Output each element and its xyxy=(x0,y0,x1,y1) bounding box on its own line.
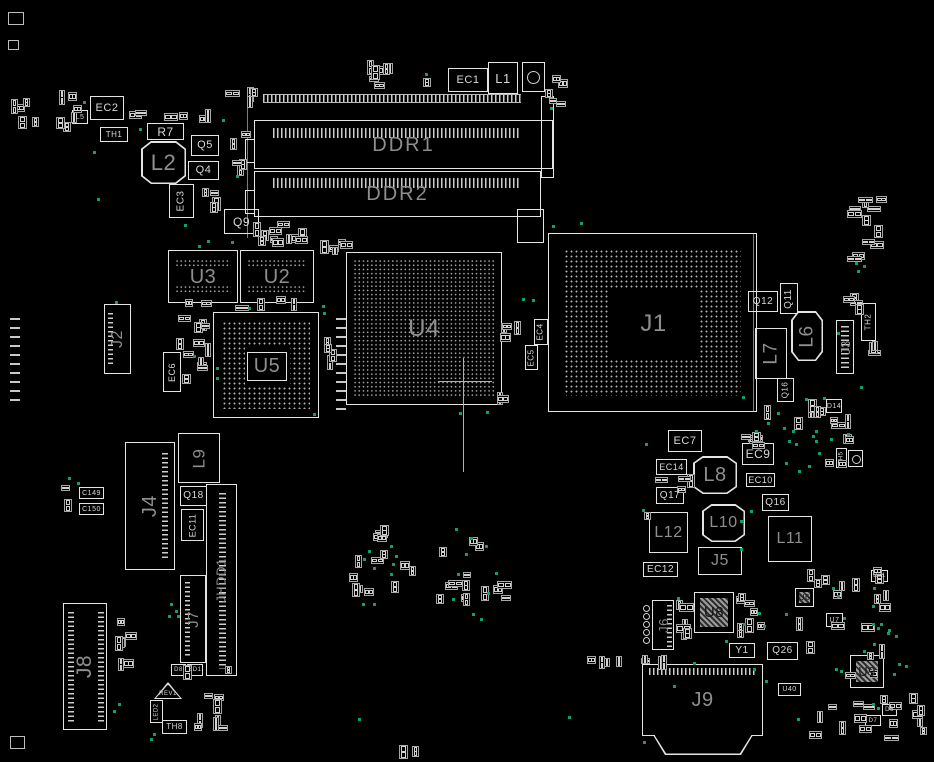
part-pad xyxy=(911,698,916,703)
connector-hole xyxy=(643,621,650,628)
small-part[interactable] xyxy=(683,628,692,639)
small-part[interactable] xyxy=(862,239,875,245)
part-pad xyxy=(562,81,567,86)
component-EC2-3[interactable]: EC2 xyxy=(90,96,124,120)
part-pad xyxy=(874,345,876,350)
part-pad xyxy=(506,325,511,328)
small-part[interactable] xyxy=(241,131,251,138)
test-point xyxy=(798,470,801,473)
component-label: EC12 xyxy=(647,565,674,575)
small-part[interactable] xyxy=(825,459,834,467)
test-point xyxy=(763,625,766,628)
small-part[interactable] xyxy=(845,672,856,679)
component-EC1-0[interactable]: EC1 xyxy=(448,68,488,92)
small-part[interactable] xyxy=(11,99,18,114)
part-pad xyxy=(206,302,211,305)
small-part[interactable] xyxy=(204,693,213,699)
small-part[interactable] xyxy=(383,63,390,75)
small-part[interactable] xyxy=(371,65,380,80)
part-pad xyxy=(766,406,769,412)
component-DDR1[interactable]: DDR1 xyxy=(254,120,553,169)
component-EC11-48[interactable]: EC11 xyxy=(181,509,204,541)
part-pad xyxy=(252,92,256,96)
small-part[interactable] xyxy=(545,89,553,98)
small-part[interactable] xyxy=(809,731,822,739)
component-label: EC14 xyxy=(659,463,684,472)
small-part[interactable] xyxy=(178,315,191,322)
small-part[interactable] xyxy=(839,721,846,735)
component-EC7-31[interactable]: EC7 xyxy=(668,430,702,452)
component-J4-45[interactable]: J4 xyxy=(125,442,175,570)
small-part[interactable] xyxy=(225,666,232,674)
small-part[interactable] xyxy=(202,188,209,197)
part-pad xyxy=(357,556,360,561)
part-pad xyxy=(556,77,560,81)
part-pad xyxy=(178,344,182,349)
small-part[interactable] xyxy=(258,236,266,246)
test-point xyxy=(139,128,142,131)
small-part[interactable] xyxy=(409,566,416,576)
component-JHDD1-49[interactable]: JHDD1 xyxy=(206,484,237,676)
part-pad xyxy=(739,626,742,630)
part-pad xyxy=(866,727,871,731)
part-pad xyxy=(663,663,665,669)
small-part[interactable] xyxy=(862,215,871,226)
test-point xyxy=(857,270,860,273)
component-U3-12[interactable]: U3 xyxy=(168,250,238,303)
test-point xyxy=(459,412,462,415)
small-part[interactable] xyxy=(843,296,855,303)
small-part[interactable] xyxy=(552,75,561,83)
part-pad xyxy=(379,84,384,87)
component-Y1-59[interactable]: Y1 xyxy=(729,643,755,658)
component-label: TH8 xyxy=(166,723,183,731)
test-point xyxy=(184,224,187,227)
part-pad xyxy=(885,737,891,739)
small-part[interactable] xyxy=(123,659,134,668)
component-TH1-5[interactable]: TH1 xyxy=(100,127,128,142)
small-part[interactable] xyxy=(867,652,874,660)
part-pad xyxy=(302,238,307,242)
small-part[interactable] xyxy=(514,321,521,335)
part-pad xyxy=(753,610,757,614)
part-pad xyxy=(687,605,693,610)
component-Q12-21[interactable]: Q12 xyxy=(748,291,778,312)
part-pad xyxy=(841,585,843,590)
small-part[interactable] xyxy=(847,210,862,218)
test-point xyxy=(835,668,838,671)
small-part[interactable] xyxy=(269,227,282,235)
part-pad xyxy=(876,226,881,231)
small-part[interactable] xyxy=(201,323,210,329)
small-part[interactable] xyxy=(806,641,815,654)
small-part[interactable] xyxy=(679,603,694,612)
component-Q16-26[interactable]: Q16 xyxy=(777,378,794,402)
component-U8-58[interactable]: U8 xyxy=(694,592,734,633)
component-label: L6 xyxy=(797,325,816,347)
component-Q16-37[interactable]: Q16 xyxy=(762,494,789,511)
component-J8-51[interactable]: J8 xyxy=(63,603,107,730)
component-Q4-9[interactable]: Q4 xyxy=(188,161,219,180)
component-J1-20[interactable]: J1 xyxy=(548,233,757,412)
component-J7-50[interactable]: J7 xyxy=(180,575,206,663)
test-point xyxy=(236,175,239,178)
component-EC4-18[interactable]: EC4 xyxy=(534,319,548,345)
part-pad xyxy=(809,570,813,575)
component-J5-41[interactable]: J5 xyxy=(698,547,742,575)
small-part[interactable] xyxy=(210,202,218,213)
component-unlabeled-2[interactable] xyxy=(522,62,545,92)
small-part[interactable] xyxy=(164,113,178,121)
part-pad xyxy=(866,199,872,201)
small-part[interactable] xyxy=(463,572,471,578)
part-pad xyxy=(438,598,442,603)
small-part[interactable] xyxy=(194,723,202,731)
small-part[interactable] xyxy=(235,305,249,311)
small-part[interactable] xyxy=(439,547,447,557)
small-part[interactable] xyxy=(213,717,219,731)
pad-column xyxy=(336,318,346,414)
small-part[interactable] xyxy=(205,109,211,123)
small-part[interactable] xyxy=(741,434,751,440)
component-C150-44[interactable]: C150 xyxy=(79,503,104,515)
small-part[interactable] xyxy=(845,436,854,444)
test-point xyxy=(77,482,80,485)
small-part[interactable] xyxy=(744,600,755,607)
part-pad xyxy=(20,123,25,128)
part-pad xyxy=(855,258,861,260)
small-part[interactable] xyxy=(661,655,667,670)
small-part[interactable] xyxy=(920,727,927,735)
component-Q26-60[interactable]: Q26 xyxy=(767,642,798,660)
small-part[interactable] xyxy=(355,555,362,568)
small-part[interactable] xyxy=(839,581,845,591)
small-part[interactable] xyxy=(374,82,385,89)
part-pad xyxy=(259,299,263,304)
small-part[interactable] xyxy=(320,240,329,254)
small-part[interactable] xyxy=(185,299,193,307)
small-part[interactable] xyxy=(884,735,899,741)
part-pad xyxy=(278,223,283,226)
small-part[interactable] xyxy=(257,298,265,311)
component-REV1-54[interactable]: REV1 xyxy=(154,682,182,699)
part-pad xyxy=(293,305,295,310)
small-part[interactable] xyxy=(23,98,30,107)
small-part[interactable] xyxy=(247,96,253,108)
small-part[interactable] xyxy=(828,704,837,710)
small-part[interactable] xyxy=(352,583,360,597)
small-part[interactable] xyxy=(291,298,297,311)
test-point xyxy=(783,427,786,430)
small-part[interactable] xyxy=(182,374,191,384)
component-L1-1[interactable]: L1 xyxy=(488,62,518,94)
small-part[interactable] xyxy=(277,221,290,228)
small-part[interactable] xyxy=(56,117,65,129)
small-part[interactable] xyxy=(391,581,399,593)
small-part[interactable] xyxy=(655,477,668,483)
small-part[interactable] xyxy=(463,593,470,606)
small-part[interactable] xyxy=(436,594,444,604)
small-part[interactable] xyxy=(399,745,408,759)
test-point xyxy=(193,355,196,358)
small-part[interactable] xyxy=(412,746,419,757)
small-part[interactable] xyxy=(616,656,622,667)
part-pad xyxy=(498,583,504,587)
small-part[interactable] xyxy=(853,701,864,707)
small-part[interactable] xyxy=(448,580,463,587)
component-Q18-47[interactable]: Q18 xyxy=(180,486,207,506)
test-point xyxy=(313,413,316,416)
small-part[interactable] xyxy=(830,417,838,424)
component-L9-46[interactable]: L9 xyxy=(178,433,220,483)
part-pad xyxy=(185,317,190,320)
small-part[interactable] xyxy=(879,603,891,612)
part-pad xyxy=(411,570,414,575)
small-part[interactable] xyxy=(68,92,77,101)
part-pad xyxy=(456,582,462,585)
part-pad xyxy=(25,102,28,106)
connector-hole xyxy=(643,637,650,644)
small-part[interactable] xyxy=(501,595,511,601)
test-point xyxy=(68,477,71,480)
small-part[interactable] xyxy=(500,333,511,342)
part-pad xyxy=(232,144,235,149)
small-part[interactable] xyxy=(324,344,332,353)
small-part[interactable] xyxy=(272,238,284,247)
small-part[interactable] xyxy=(176,338,184,350)
small-part[interactable] xyxy=(423,78,431,87)
small-part[interactable] xyxy=(349,573,358,582)
component-U6-63[interactable]: U6 xyxy=(795,588,814,607)
test-point xyxy=(118,703,121,706)
component-J9-62[interactable]: J9 xyxy=(642,664,763,736)
small-part[interactable] xyxy=(205,343,211,357)
part-pad xyxy=(341,243,346,247)
small-part[interactable] xyxy=(232,160,242,166)
test-point xyxy=(785,613,788,616)
component-label: EC4 xyxy=(537,323,545,340)
component-L6-24[interactable]: L6 xyxy=(791,311,823,361)
small-part[interactable] xyxy=(125,632,137,640)
part-pad xyxy=(885,605,890,610)
component-L12-38[interactable]: L12 xyxy=(649,512,688,553)
component-U40-61[interactable]: U40 xyxy=(778,683,801,696)
part-pad xyxy=(233,92,239,95)
small-part[interactable] xyxy=(210,190,219,196)
test-point xyxy=(470,537,473,540)
part-pad xyxy=(372,559,377,562)
small-part[interactable] xyxy=(587,656,596,664)
small-part[interactable] xyxy=(340,241,353,249)
small-part[interactable] xyxy=(213,699,222,714)
test-point xyxy=(465,553,468,556)
small-part[interactable] xyxy=(253,222,261,237)
component-J2-14[interactable]: J2 xyxy=(104,304,131,374)
component-J6-57[interactable]: J6 xyxy=(652,600,674,650)
part-pad xyxy=(847,415,849,421)
small-part[interactable] xyxy=(497,395,509,403)
test-point xyxy=(740,548,743,551)
component-D14-28[interactable]: D14 xyxy=(826,399,842,413)
component-EC5-19[interactable]: EC5 xyxy=(525,345,538,370)
small-part[interactable] xyxy=(858,197,873,203)
part-pad xyxy=(816,733,821,737)
connector-pin-strip xyxy=(98,612,104,722)
circle-component-body xyxy=(852,455,861,464)
part-pad xyxy=(353,575,357,580)
component-L10-39[interactable]: L10 xyxy=(702,504,745,542)
component-label: Q11 xyxy=(784,289,794,309)
small-part[interactable] xyxy=(889,719,898,728)
component-C149-43[interactable]: C149 xyxy=(79,487,104,499)
small-part[interactable] xyxy=(61,485,70,491)
small-part[interactable] xyxy=(872,341,878,351)
part-pad xyxy=(385,69,388,74)
small-part[interactable] xyxy=(115,636,123,651)
small-part[interactable] xyxy=(876,196,887,203)
small-part[interactable] xyxy=(821,575,830,585)
small-part[interactable] xyxy=(295,236,308,244)
test-point xyxy=(373,567,376,570)
test-point xyxy=(248,307,251,310)
small-part[interactable] xyxy=(556,101,566,107)
small-part[interactable] xyxy=(817,711,823,723)
component-J3-25[interactable]: J3 xyxy=(836,320,854,374)
component-R7-6[interactable]: R7 xyxy=(147,123,184,140)
small-part[interactable] xyxy=(642,655,648,664)
small-part[interactable] xyxy=(867,206,881,212)
component-U5-15[interactable]: U5 xyxy=(213,312,319,418)
part-pad xyxy=(893,721,897,726)
component-DDR2[interactable]: DDR2 xyxy=(254,171,541,217)
small-part[interactable] xyxy=(794,417,803,430)
test-point xyxy=(855,262,858,265)
part-pad xyxy=(808,642,813,647)
small-part[interactable] xyxy=(644,512,651,520)
part-pad xyxy=(207,116,209,122)
small-part[interactable] xyxy=(230,138,237,150)
part-pad xyxy=(117,637,121,643)
small-part[interactable] xyxy=(874,594,881,604)
small-part[interactable] xyxy=(201,300,212,307)
small-part[interactable] xyxy=(225,90,240,97)
component-EC3-10[interactable]: EC3 xyxy=(169,184,194,218)
component-label: U6 xyxy=(799,594,810,602)
test-point xyxy=(805,398,808,401)
bga-center-area: U5 xyxy=(245,345,290,387)
small-part[interactable] xyxy=(909,693,918,704)
small-part[interactable] xyxy=(917,705,925,716)
test-point xyxy=(847,433,850,436)
small-part[interactable] xyxy=(796,617,803,631)
small-part[interactable] xyxy=(917,718,923,727)
small-part[interactable] xyxy=(502,323,512,330)
small-part[interactable] xyxy=(814,406,821,418)
small-part[interactable] xyxy=(250,88,258,97)
part-pad xyxy=(293,299,295,304)
small-part[interactable] xyxy=(64,499,72,512)
component-EC12-42[interactable]: EC12 xyxy=(643,562,678,577)
small-part[interactable] xyxy=(32,117,39,127)
component-unlabeled-30[interactable] xyxy=(848,450,863,467)
small-part[interactable] xyxy=(462,580,470,591)
small-part[interactable] xyxy=(854,714,867,723)
small-part[interactable] xyxy=(604,658,610,667)
small-part[interactable] xyxy=(179,112,188,120)
test-point xyxy=(390,573,393,576)
small-part[interactable] xyxy=(883,590,889,601)
small-part[interactable] xyxy=(135,110,147,116)
board-mark xyxy=(10,736,25,749)
small-part[interactable] xyxy=(678,476,691,482)
small-part[interactable] xyxy=(859,725,872,733)
component-label: D21 xyxy=(873,573,886,579)
test-point xyxy=(113,710,116,713)
small-part[interactable] xyxy=(276,296,286,304)
test-point xyxy=(808,465,811,468)
dimm-pin-row xyxy=(263,94,521,103)
small-part[interactable] xyxy=(874,225,883,238)
component-TH8-56[interactable]: TH8 xyxy=(162,720,187,734)
small-part[interactable] xyxy=(879,644,885,659)
component-Q11-22[interactable]: Q11 xyxy=(780,283,798,314)
component-L8-34[interactable]: L8 xyxy=(693,456,737,494)
small-part[interactable] xyxy=(752,432,761,442)
part-pad xyxy=(823,579,828,584)
small-part[interactable] xyxy=(380,550,388,559)
small-part[interactable] xyxy=(845,414,851,429)
test-point xyxy=(368,550,371,553)
small-part[interactable] xyxy=(497,581,512,589)
small-part[interactable] xyxy=(380,525,389,536)
part-pad xyxy=(848,258,854,260)
selection-crosshair xyxy=(438,381,492,382)
part-pad xyxy=(869,655,872,659)
test-point xyxy=(893,673,896,676)
small-part[interactable] xyxy=(18,116,27,129)
part-pad xyxy=(226,92,232,95)
component-label: EC11 xyxy=(188,513,197,537)
component-U4-17[interactable]: U4 xyxy=(346,252,502,405)
component-L2-7[interactable]: L2 xyxy=(141,141,186,184)
small-part[interactable] xyxy=(745,618,754,633)
test-point xyxy=(395,555,398,558)
small-part[interactable] xyxy=(193,339,205,347)
part-pad xyxy=(685,478,690,480)
component-EC14-32[interactable]: EC14 xyxy=(656,459,687,475)
component-L11-40[interactable]: L11 xyxy=(768,516,812,562)
component-Q17-36[interactable]: Q17 xyxy=(656,487,684,504)
small-part[interactable] xyxy=(764,405,771,420)
small-part[interactable] xyxy=(197,365,208,371)
small-part[interactable] xyxy=(880,695,888,704)
component-EC9-33[interactable]: EC9 xyxy=(742,443,774,465)
component-label: DDR1 xyxy=(372,135,434,155)
small-part[interactable] xyxy=(117,618,125,626)
component-L7-23[interactable]: L7 xyxy=(755,328,787,379)
small-part[interactable] xyxy=(364,588,374,596)
small-part[interactable] xyxy=(750,608,758,616)
board-canvas[interactable]: DDR1DDR2EC1L1EC2L5TH1R7L2Q5Q4EC3Q9U3U2J2… xyxy=(0,0,934,762)
component-EC6-16[interactable]: EC6 xyxy=(163,352,181,392)
small-part[interactable] xyxy=(332,247,338,255)
component-label: U7 xyxy=(830,617,840,624)
component-Q5-8[interactable]: Q5 xyxy=(191,135,219,156)
component-EC10-35[interactable]: EC10 xyxy=(746,473,775,487)
small-part[interactable] xyxy=(852,578,860,592)
test-point xyxy=(452,598,455,601)
small-part[interactable] xyxy=(59,90,65,105)
